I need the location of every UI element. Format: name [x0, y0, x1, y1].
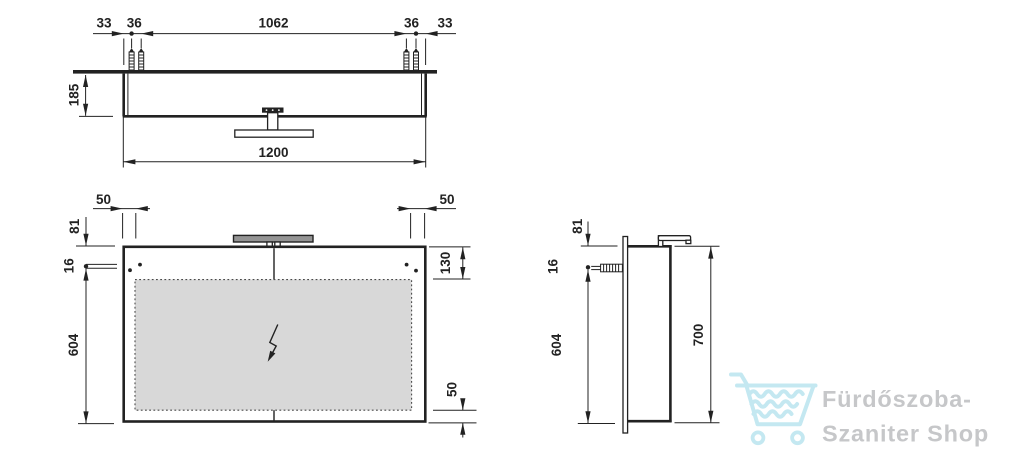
dim-16-front: 16 — [62, 258, 77, 274]
dim-33-right: 33 — [437, 15, 453, 30]
drawing-canvas: 33 36 1062 36 33 — [0, 0, 1024, 460]
cabinet-side-outline — [628, 245, 672, 422]
screw-anchor-icon — [414, 48, 419, 70]
arrow-down-icon — [708, 411, 713, 423]
top-view: 33 36 1062 36 33 — [67, 15, 456, 167]
cart-wheel-icon — [792, 432, 803, 443]
arrow-down-icon — [83, 234, 88, 246]
dim-36-right: 36 — [404, 15, 420, 30]
dim-81-front: 81 — [67, 218, 82, 234]
arrow-right-icon — [112, 31, 124, 36]
wall-plate — [73, 70, 437, 74]
screw-side-icon — [591, 264, 622, 272]
dim-dot — [129, 31, 133, 35]
watermark-line2: Szaniter Shop — [822, 421, 989, 447]
dim-dot — [414, 31, 418, 35]
dim-bracket-right-group: 50 — [397, 192, 456, 239]
dim-130-group: 130 — [429, 247, 471, 279]
mounting-hole — [138, 263, 142, 267]
arrow-left-icon — [141, 31, 153, 36]
dim-604-side: 604 — [549, 333, 564, 356]
watermark-logo: Fürdőszoba- Szaniter Shop — [731, 375, 989, 447]
arrow-down-icon — [585, 234, 590, 246]
dim-33-left: 33 — [96, 15, 112, 30]
shopping-cart-waves-icon — [731, 375, 816, 444]
mounting-hole — [128, 268, 132, 272]
arrow-left-icon — [136, 206, 148, 211]
dim-depth-group: 185 — [67, 75, 113, 116]
arrow-left-icon — [426, 31, 438, 36]
dim-50-left: 50 — [96, 192, 111, 207]
cart-wheel-icon — [753, 432, 764, 443]
arrow-up-icon — [460, 247, 465, 259]
arrow-left-icon — [123, 159, 135, 164]
dim-50-bottom-group: 50 — [429, 382, 477, 438]
mounting-hole — [414, 269, 418, 273]
arrow-right-icon — [414, 159, 426, 164]
arrow-left-icon — [425, 206, 437, 211]
dim-50-right: 50 — [439, 192, 454, 207]
side-view: 81 16 604 700 — [546, 218, 720, 433]
dim-700: 700 — [691, 324, 706, 347]
mounting-hole — [405, 263, 409, 267]
screw-anchor-icon — [129, 48, 134, 70]
front-view: 50 50 — [62, 192, 477, 438]
wall-strip-side — [623, 237, 628, 434]
dim-dot — [586, 265, 590, 269]
dim-36-left: 36 — [127, 15, 143, 30]
watermark-line1: Fürdőszoba- — [822, 386, 972, 412]
arrow-down-icon — [460, 398, 465, 410]
arrow-down-icon — [83, 411, 88, 423]
arrow-right-icon — [394, 31, 406, 36]
dim-130: 130 — [438, 252, 453, 275]
dim-700-group: 700 — [675, 246, 720, 422]
light-arm-side — [658, 236, 690, 247]
light-fixture-plan — [235, 108, 313, 138]
dim-16-side: 16 — [546, 259, 561, 275]
dim-81-side: 81 — [570, 218, 585, 234]
arrow-down-icon — [83, 104, 88, 116]
dim-50-bottom: 50 — [445, 382, 460, 397]
arrow-right-icon — [399, 206, 411, 211]
arrow-down-icon — [460, 267, 465, 279]
arrow-up-icon — [83, 75, 88, 87]
arrow-down-icon — [585, 411, 590, 423]
dim-left-stack-front: 81 16 604 — [62, 217, 117, 424]
arrow-up-icon — [460, 423, 465, 435]
dim-bracket-left-group: 50 — [93, 192, 150, 239]
arrow-right-icon — [111, 206, 123, 211]
screw-anchor-icon — [139, 48, 144, 70]
screw-anchor-icon — [404, 48, 409, 70]
arrow-up-icon — [708, 247, 713, 259]
light-fixture-front — [234, 235, 314, 247]
dim-1062: 1062 — [258, 15, 288, 30]
technical-drawing-page: 33 36 1062 36 33 — [0, 0, 1024, 460]
dim-185: 185 — [67, 83, 82, 106]
dim-604-front: 604 — [66, 333, 81, 356]
dim-left-stack-side: 81 16 604 — [546, 218, 618, 423]
dim-1200: 1200 — [258, 145, 288, 160]
